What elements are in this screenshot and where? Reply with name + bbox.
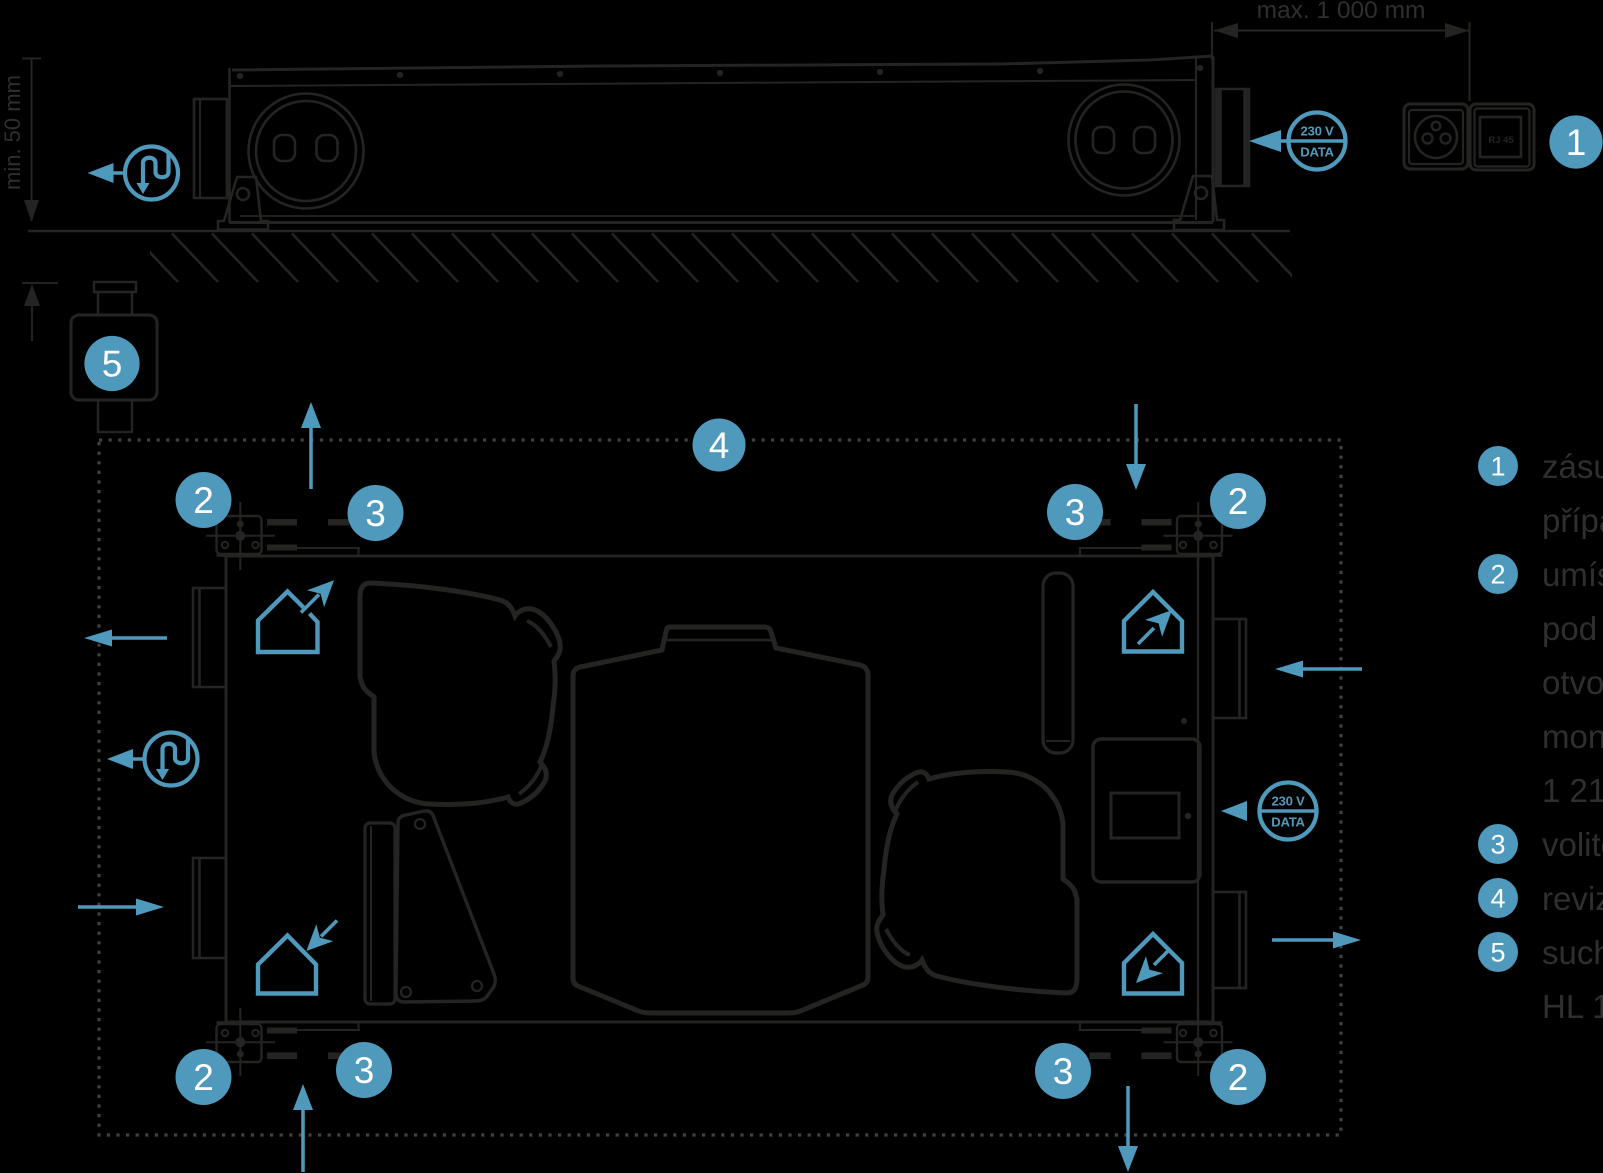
svg-text:umístění: umístění (1542, 556, 1603, 593)
svg-text:2: 2 (193, 1057, 214, 1098)
svg-text:zásuvka 2: zásuvka 2 (1542, 448, 1603, 485)
svg-text:revizní ot: revizní ot (1542, 880, 1603, 917)
svg-text:230 V: 230 V (1301, 124, 1334, 139)
svg-text:max. 1 000 mm: max. 1 000 mm (1257, 0, 1426, 24)
svg-text:pod strop: pod strop (1542, 610, 1603, 647)
svg-text:otvor pro: otvor pro (1542, 664, 1603, 701)
svg-text:2: 2 (1228, 481, 1249, 522)
svg-text:230 V: 230 V (1272, 794, 1305, 809)
svg-text:2: 2 (1490, 560, 1505, 590)
svg-text:5: 5 (102, 344, 123, 385)
svg-text:suchý sif: suchý sif (1542, 934, 1603, 971)
svg-text:1 210 mm: 1 210 mm (1542, 772, 1603, 809)
svg-text:RJ 45: RJ 45 (1488, 135, 1514, 146)
svg-text:HL 138: HL 138 (1542, 988, 1603, 1025)
svg-text:DATA: DATA (1271, 815, 1305, 830)
svg-text:volitelné: volitelné (1542, 826, 1603, 863)
svg-text:3: 3 (1053, 1051, 1074, 1092)
svg-text:2: 2 (193, 480, 214, 521)
svg-text:montážn: montážn (1542, 718, 1603, 755)
svg-text:3: 3 (1065, 492, 1086, 533)
svg-text:případně: případně (1542, 502, 1603, 539)
svg-text:3: 3 (1490, 830, 1505, 860)
svg-text:2: 2 (1228, 1057, 1249, 1098)
svg-text:5: 5 (1490, 938, 1505, 968)
svg-text:3: 3 (354, 1050, 375, 1091)
svg-text:3: 3 (365, 493, 386, 534)
svg-text:1: 1 (1490, 452, 1505, 482)
svg-text:DATA: DATA (1300, 145, 1334, 160)
svg-text:1: 1 (1566, 122, 1587, 163)
svg-text:4: 4 (709, 425, 730, 466)
svg-text:min. 50 mm: min. 50 mm (0, 75, 25, 190)
svg-text:4: 4 (1490, 884, 1505, 914)
